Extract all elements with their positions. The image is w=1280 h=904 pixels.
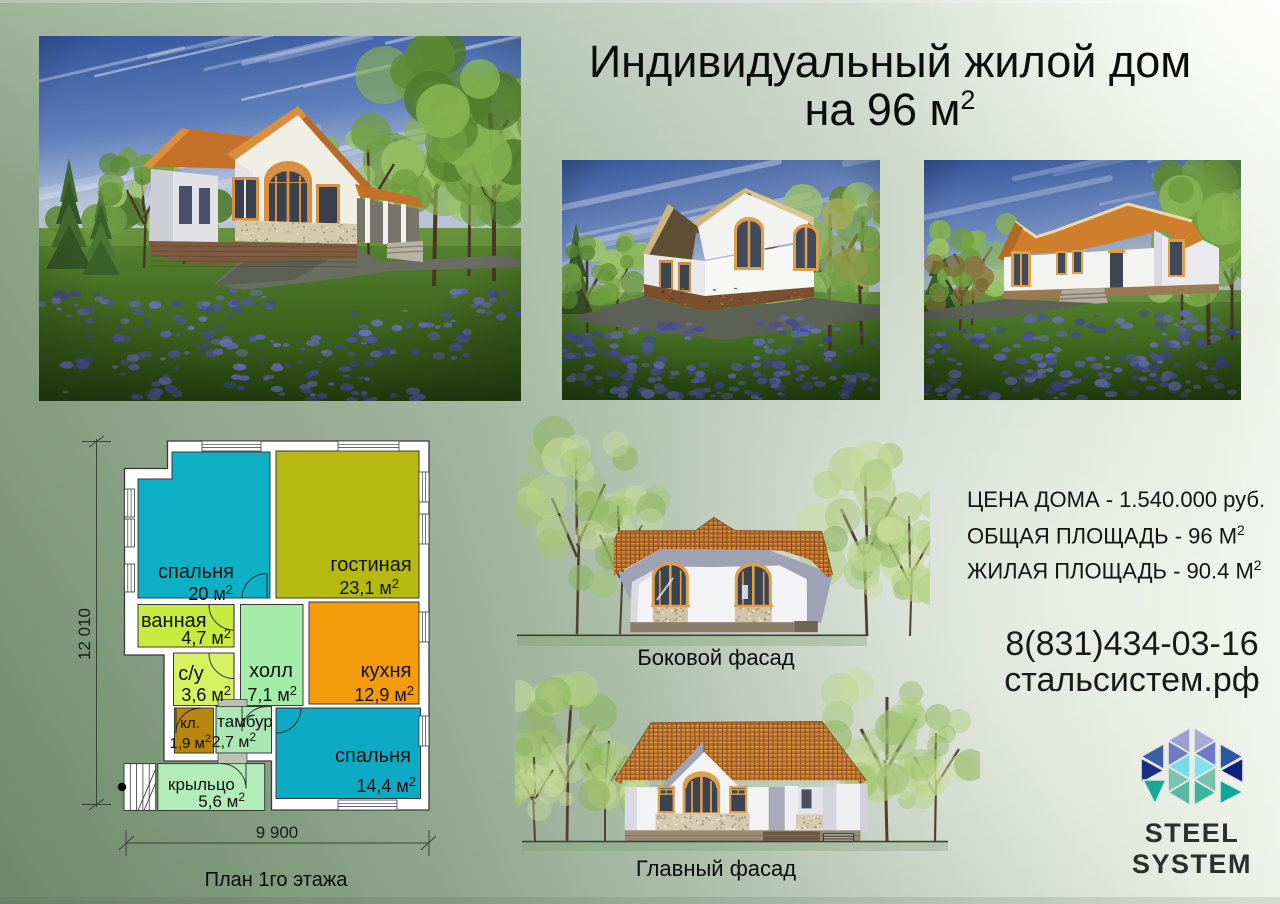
- svg-text:4,7 м2: 4,7 м2: [181, 626, 231, 648]
- svg-text:14,4 м2: 14,4 м2: [356, 774, 416, 796]
- svg-text:23,1 м2: 23,1 м2: [339, 576, 399, 598]
- svg-text:9 900: 9 900: [256, 823, 299, 842]
- svg-text:кл.: кл.: [180, 715, 200, 732]
- svg-text:Главный фасад: Главный фасад: [636, 856, 796, 881]
- svg-text:12,9 м2: 12,9 м2: [354, 683, 414, 705]
- svg-text:План 1го этажа: План 1го этажа: [205, 869, 349, 891]
- svg-text:холл: холл: [249, 660, 293, 682]
- svg-text:1,9 м2: 1,9 м2: [170, 733, 211, 752]
- svg-text:3,6 м2: 3,6 м2: [181, 683, 231, 705]
- svg-text:12 010: 12 010: [78, 608, 94, 660]
- svg-text:спальня: спальня: [335, 745, 411, 767]
- svg-text:гостиная: гостиная: [330, 554, 411, 576]
- svg-text:кухня: кухня: [361, 660, 412, 682]
- svg-text:7,1 м2: 7,1 м2: [247, 683, 297, 705]
- svg-text:с/у: с/у: [178, 663, 204, 685]
- svg-text:5,6 м2: 5,6 м2: [198, 790, 245, 811]
- svg-text:тамбур: тамбур: [217, 712, 273, 731]
- svg-text:спальня: спальня: [158, 561, 234, 583]
